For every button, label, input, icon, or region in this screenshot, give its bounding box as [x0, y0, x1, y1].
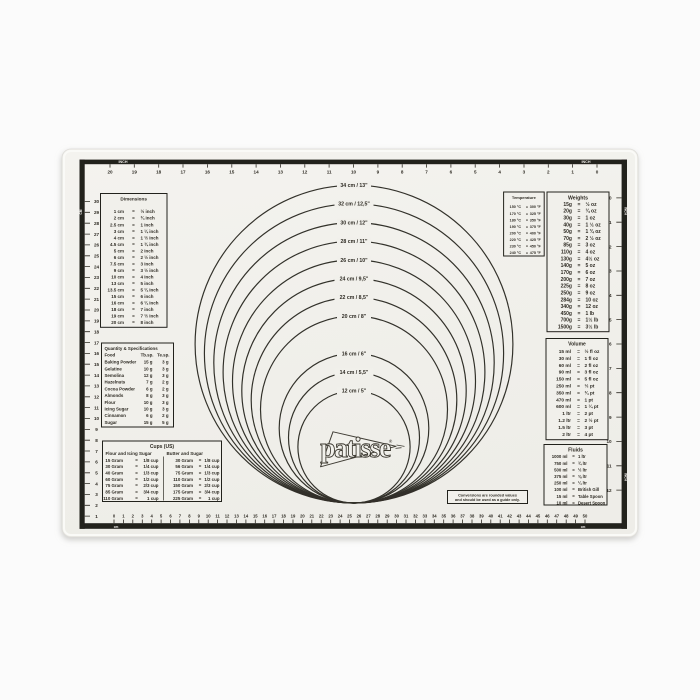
- svg-text:600 ml: 600 ml: [556, 404, 571, 410]
- svg-text:15: 15: [229, 169, 235, 174]
- svg-text:5: 5: [474, 169, 477, 174]
- svg-text:½ ltr: ½ ltr: [578, 467, 587, 472]
- svg-text:¼ ltr: ¼ ltr: [578, 481, 587, 486]
- svg-text:19: 19: [132, 169, 138, 174]
- svg-text:CM: CM: [79, 209, 83, 214]
- svg-text:6: 6: [609, 342, 612, 347]
- svg-text:1 cup: 1 cup: [147, 496, 159, 501]
- svg-text:17: 17: [94, 340, 100, 345]
- svg-text:22: 22: [319, 514, 324, 519]
- svg-text:375 ml: 375 ml: [554, 474, 567, 479]
- svg-text:10: 10: [351, 169, 357, 174]
- svg-text:=: =: [132, 209, 135, 214]
- svg-text:=: =: [135, 490, 138, 495]
- svg-text:2 g: 2 g: [162, 386, 169, 391]
- svg-text:=: =: [578, 243, 581, 249]
- svg-text:43: 43: [517, 514, 522, 519]
- svg-text:2: 2: [95, 503, 98, 508]
- svg-text:18: 18: [94, 329, 100, 334]
- svg-text:=: =: [577, 357, 580, 362]
- svg-text:Flour and Icing Sugar: Flour and Icing Sugar: [106, 451, 153, 456]
- svg-text:26: 26: [94, 243, 100, 248]
- svg-text:1 ¼ pt: 1 ¼ pt: [585, 403, 599, 410]
- svg-text:200g: 200g: [561, 277, 572, 283]
- svg-text:=: =: [132, 242, 135, 247]
- svg-text:=: =: [132, 235, 135, 240]
- svg-text:5 inch: 5 inch: [141, 281, 154, 286]
- svg-text:=: =: [578, 263, 581, 269]
- svg-text:7 g: 7 g: [146, 380, 153, 385]
- svg-text:1 cup: 1 cup: [208, 496, 220, 501]
- svg-text:2/3 cup: 2/3 cup: [143, 483, 158, 488]
- svg-text:INCH: INCH: [581, 160, 590, 164]
- svg-text:6 cm: 6 cm: [114, 255, 124, 260]
- svg-text:24: 24: [94, 264, 100, 269]
- svg-text:130g: 130g: [561, 256, 572, 262]
- svg-text:½ pt: ½ pt: [585, 383, 595, 390]
- svg-text:Cups (US): Cups (US): [150, 444, 175, 450]
- svg-text:patisse: patisse: [320, 432, 390, 464]
- svg-text:17: 17: [272, 514, 277, 519]
- svg-text:150 Gram: 150 Gram: [173, 483, 193, 488]
- svg-text:18: 18: [281, 514, 286, 519]
- svg-text:16: 16: [205, 169, 211, 174]
- svg-text:9: 9: [95, 427, 98, 432]
- svg-text:=: =: [526, 251, 528, 255]
- svg-text:Butter and Sugar: Butter and Sugar: [167, 451, 204, 456]
- svg-text:=: =: [578, 277, 581, 283]
- svg-text:39: 39: [479, 514, 484, 519]
- svg-text:1/8 cup: 1/8 cup: [143, 458, 158, 463]
- svg-text:5 oz: 5 oz: [586, 263, 596, 269]
- svg-text:=: =: [578, 250, 581, 256]
- svg-text:25: 25: [347, 514, 352, 519]
- svg-text:=: =: [577, 405, 580, 410]
- svg-text:=: =: [577, 426, 580, 431]
- svg-text:700g: 700g: [561, 318, 572, 324]
- svg-text:1/4 cup: 1/4 cup: [143, 464, 158, 469]
- svg-text:INCH: INCH: [623, 473, 627, 481]
- svg-text:=: =: [132, 248, 135, 253]
- svg-text:Tb.sp.: Tb.sp.: [141, 353, 154, 358]
- svg-text:26: 26: [357, 514, 362, 519]
- svg-text:110 Gram: 110 Gram: [103, 496, 123, 501]
- svg-text:Baking Powder: Baking Powder: [105, 360, 137, 365]
- svg-text:10 ml: 10 ml: [557, 500, 568, 505]
- svg-text:110 Gram: 110 Gram: [173, 477, 193, 482]
- svg-text:100 ml: 100 ml: [554, 487, 567, 492]
- svg-text:½ fl oz: ½ fl oz: [585, 348, 601, 355]
- svg-text:36: 36: [451, 514, 456, 519]
- svg-text:25: 25: [94, 253, 100, 258]
- svg-text:=: =: [135, 458, 138, 463]
- svg-text:=: =: [578, 256, 581, 262]
- svg-text:28: 28: [94, 221, 100, 226]
- svg-text:1 pt: 1 pt: [585, 397, 594, 403]
- svg-text:30g: 30g: [563, 215, 572, 221]
- svg-text:4 pt: 4 pt: [585, 432, 594, 438]
- svg-text:=: =: [578, 290, 581, 296]
- svg-text:300 °F: 300 °F: [530, 205, 542, 209]
- svg-text:28 cm / 11": 28 cm / 11": [341, 239, 369, 245]
- svg-text:½ oz: ½ oz: [586, 201, 598, 208]
- svg-text:1/2 cup: 1/2 cup: [143, 477, 158, 482]
- svg-text:1/3 cup: 1/3 cup: [204, 471, 219, 476]
- svg-text:3 g: 3 g: [162, 366, 169, 371]
- svg-text:30 Gram: 30 Gram: [105, 464, 123, 469]
- svg-text:33: 33: [423, 514, 428, 519]
- svg-text:Fluids: Fluids: [568, 448, 583, 454]
- svg-text:150 °C: 150 °C: [510, 205, 522, 209]
- svg-text:0: 0: [596, 169, 599, 174]
- svg-text:44: 44: [526, 514, 531, 519]
- svg-text:=: =: [577, 391, 580, 396]
- svg-text:350 °F: 350 °F: [530, 218, 542, 222]
- svg-text:400 °F: 400 °F: [530, 231, 542, 235]
- svg-text:=: =: [135, 483, 138, 488]
- svg-text:34 cm / 13": 34 cm / 13": [340, 183, 368, 189]
- svg-text:15 g: 15 g: [144, 360, 153, 365]
- svg-text:=: =: [199, 477, 202, 482]
- svg-text:18: 18: [156, 169, 162, 174]
- svg-text:=: =: [132, 216, 135, 221]
- svg-text:2 ½ oz: 2 ½ oz: [586, 235, 602, 242]
- svg-text:19: 19: [291, 514, 296, 519]
- svg-text:13: 13: [234, 514, 239, 519]
- svg-text:1/8 cup: 1/8 cup: [204, 458, 219, 463]
- svg-text:180 °C: 180 °C: [510, 218, 522, 222]
- svg-text:=: =: [199, 490, 202, 495]
- svg-text:¾ ltr: ¾ ltr: [578, 461, 587, 466]
- svg-text:7 oz: 7 oz: [586, 277, 596, 283]
- svg-text:85 Gram: 85 Gram: [105, 490, 123, 495]
- svg-text:=: =: [577, 378, 580, 383]
- svg-text:Table Spoon: Table Spoon: [578, 494, 603, 499]
- svg-text:=: =: [577, 398, 580, 403]
- svg-text:5: 5: [95, 470, 98, 475]
- svg-text:21: 21: [309, 514, 314, 519]
- svg-text:5 cm: 5 cm: [114, 248, 124, 253]
- svg-text:21: 21: [94, 297, 100, 302]
- svg-text:17: 17: [180, 169, 186, 174]
- svg-text:24 cm / 9,5": 24 cm / 9,5": [340, 277, 369, 283]
- svg-text:=: =: [577, 419, 580, 424]
- svg-text:=: =: [578, 318, 581, 324]
- svg-text:=: =: [577, 412, 580, 417]
- svg-text:=: =: [526, 205, 528, 209]
- svg-text:2 g: 2 g: [162, 413, 169, 418]
- svg-text:10 g: 10 g: [144, 366, 153, 371]
- svg-text:90 ml: 90 ml: [559, 370, 571, 376]
- svg-text:11: 11: [327, 169, 332, 174]
- svg-text:3 pt: 3 pt: [585, 425, 594, 431]
- svg-text:11: 11: [607, 463, 612, 468]
- svg-text:=: =: [132, 222, 135, 227]
- svg-text:=: =: [132, 320, 135, 325]
- svg-text:=: =: [132, 301, 135, 306]
- svg-text:=: =: [132, 229, 135, 234]
- svg-text:450g: 450g: [561, 311, 572, 317]
- svg-text:Food: Food: [105, 353, 116, 358]
- svg-text:284g: 284g: [561, 297, 572, 303]
- svg-text:4 oz: 4 oz: [586, 250, 596, 256]
- svg-text:14: 14: [244, 514, 249, 519]
- svg-text:2 ½ inch: 2 ½ inch: [141, 254, 159, 260]
- svg-text:31: 31: [404, 514, 409, 519]
- svg-text:38: 38: [470, 514, 475, 519]
- svg-text:32: 32: [413, 514, 418, 519]
- svg-text:=: =: [578, 222, 581, 228]
- svg-text:1: 1: [95, 514, 98, 519]
- svg-text:British Gill: British Gill: [578, 487, 599, 492]
- svg-text:10 cm: 10 cm: [111, 275, 124, 280]
- svg-text:3/4 cup: 3/4 cup: [204, 490, 219, 495]
- svg-text:=: =: [132, 268, 135, 273]
- svg-text:1500g: 1500g: [558, 325, 572, 331]
- svg-text:¾ oz: ¾ oz: [586, 208, 598, 215]
- svg-text:1 inch: 1 inch: [141, 222, 154, 227]
- svg-text:16 cm: 16 cm: [111, 301, 124, 306]
- svg-text:8 oz: 8 oz: [586, 284, 596, 290]
- svg-text:30: 30: [94, 199, 100, 204]
- svg-text:325 °F: 325 °F: [530, 212, 542, 216]
- svg-text:3 g: 3 g: [162, 407, 169, 412]
- svg-text:Sugar: Sugar: [105, 420, 118, 425]
- svg-text:=: =: [135, 496, 138, 501]
- svg-text:=: =: [578, 209, 581, 215]
- svg-text:23: 23: [328, 514, 333, 519]
- svg-text:INCH: INCH: [118, 160, 127, 164]
- svg-text:1 ½ oz: 1 ½ oz: [586, 221, 602, 228]
- svg-text:250 ml: 250 ml: [556, 384, 571, 390]
- svg-text:=: =: [578, 297, 581, 303]
- svg-text:=: =: [132, 261, 135, 266]
- svg-text:110g: 110g: [561, 250, 572, 256]
- svg-text:6 g: 6 g: [146, 386, 153, 391]
- svg-text:=: =: [578, 202, 581, 208]
- svg-text:42: 42: [507, 514, 512, 519]
- svg-text:20 cm: 20 cm: [111, 320, 124, 325]
- svg-text:⅜ ltr: ⅜ ltr: [578, 474, 587, 479]
- svg-text:49: 49: [573, 514, 578, 519]
- svg-text:1 ¼ inch: 1 ¼ inch: [141, 228, 159, 234]
- svg-text:75 Gram: 75 Gram: [175, 471, 193, 476]
- svg-text:=: =: [135, 477, 138, 482]
- svg-text:3½ lb: 3½ lb: [586, 324, 599, 331]
- svg-text:10 oz: 10 oz: [586, 297, 599, 303]
- svg-text:20 cm / 8": 20 cm / 8": [342, 314, 367, 320]
- svg-text:2 cm: 2 cm: [114, 216, 124, 221]
- svg-text:56 Gram: 56 Gram: [175, 464, 193, 469]
- svg-text:=: =: [526, 238, 528, 242]
- svg-text:=: =: [199, 471, 202, 476]
- svg-text:7 inch: 7 inch: [141, 307, 154, 312]
- svg-text:19: 19: [94, 319, 100, 324]
- svg-text:20: 20: [300, 514, 305, 519]
- svg-text:225 Gram: 225 Gram: [173, 496, 193, 501]
- svg-text:=: =: [577, 350, 580, 355]
- svg-text:15g: 15g: [563, 202, 572, 208]
- svg-text:23: 23: [94, 275, 100, 280]
- svg-text:8: 8: [95, 438, 98, 443]
- svg-text:=: =: [199, 464, 202, 469]
- svg-text:¾ pt: ¾ pt: [585, 389, 595, 396]
- svg-text:=: =: [132, 281, 135, 286]
- svg-text:and should be used as a guide: and should be used as a guide only.: [455, 498, 520, 502]
- svg-text:40 Gram: 40 Gram: [105, 471, 123, 476]
- svg-text:14: 14: [94, 373, 100, 378]
- svg-text:½ inch: ½ inch: [141, 208, 156, 214]
- svg-text:3 g: 3 g: [162, 400, 169, 405]
- svg-text:5 ¼ inch: 5 ¼ inch: [141, 287, 159, 293]
- svg-text:27: 27: [366, 514, 371, 519]
- svg-text:Semolina: Semolina: [105, 373, 125, 378]
- svg-text:Cinnamon: Cinnamon: [105, 413, 127, 418]
- svg-text:=: =: [526, 218, 528, 222]
- svg-text:¾ inch: ¾ inch: [141, 215, 156, 221]
- svg-text:30 Gram: 30 Gram: [175, 458, 193, 463]
- svg-text:8: 8: [401, 169, 404, 174]
- svg-text:15 cm: 15 cm: [111, 294, 124, 299]
- svg-text:175 Gram: 175 Gram: [173, 490, 193, 495]
- svg-text:2 pt: 2 pt: [585, 411, 594, 417]
- svg-text:15 Gram: 15 Gram: [105, 458, 123, 463]
- svg-text:2 ½ pt: 2 ½ pt: [585, 417, 599, 424]
- svg-text:1/4 cup: 1/4 cup: [204, 464, 219, 469]
- svg-text:11: 11: [215, 514, 220, 519]
- svg-text:2 g: 2 g: [162, 380, 169, 385]
- svg-text:=: =: [132, 288, 135, 293]
- svg-text:Desert Spoon: Desert Spoon: [578, 500, 606, 505]
- svg-text:16: 16: [94, 351, 100, 356]
- svg-text:85g: 85g: [563, 243, 572, 249]
- svg-text:1 fl oz: 1 fl oz: [585, 356, 599, 362]
- svg-text:6 ¼ inch: 6 ¼ inch: [141, 300, 159, 306]
- svg-text:=: =: [135, 464, 138, 469]
- svg-text:2: 2: [547, 169, 550, 174]
- svg-text:6: 6: [95, 460, 98, 465]
- svg-text:12 oz: 12 oz: [586, 304, 599, 310]
- svg-text:=: =: [578, 284, 581, 290]
- svg-text:3/4 cup: 3/4 cup: [143, 490, 158, 495]
- svg-text:=: =: [578, 229, 581, 235]
- svg-text:=: =: [577, 364, 580, 369]
- svg-text:70g: 70g: [563, 236, 572, 242]
- svg-text:Conversions are rounded values: Conversions are rounded values: [458, 493, 517, 497]
- svg-text:220 °C: 220 °C: [510, 238, 522, 242]
- svg-text:230 °C: 230 °C: [510, 245, 522, 249]
- svg-text:20g: 20g: [563, 209, 572, 215]
- svg-text:32 cm / 12,5": 32 cm / 12,5": [338, 202, 370, 208]
- svg-text:3 oz: 3 oz: [586, 243, 596, 249]
- svg-text:=: =: [132, 314, 135, 319]
- svg-text:4.5 cm: 4.5 cm: [110, 242, 124, 247]
- svg-text:16 cm / 6": 16 cm / 6": [342, 351, 367, 357]
- svg-text:=: =: [132, 307, 135, 312]
- svg-text:5 g: 5 g: [162, 420, 169, 425]
- svg-text:1/2 cup: 1/2 cup: [204, 477, 219, 482]
- svg-text:Gelatine: Gelatine: [105, 366, 123, 371]
- svg-text:Almonds: Almonds: [105, 393, 124, 398]
- svg-text:7: 7: [95, 449, 98, 454]
- svg-text:150 ml: 150 ml: [556, 377, 571, 383]
- svg-text:Dimensions: Dimensions: [120, 197, 147, 202]
- svg-text:9: 9: [609, 415, 612, 420]
- svg-text:19 cm: 19 cm: [111, 314, 124, 319]
- svg-text:=: =: [578, 236, 581, 242]
- svg-text:13: 13: [94, 384, 100, 389]
- svg-text:7 ½ inch: 7 ½ inch: [141, 313, 159, 319]
- svg-text:4 inch: 4 inch: [141, 275, 154, 280]
- svg-text:37: 37: [460, 514, 465, 519]
- svg-text:470 ml: 470 ml: [556, 397, 571, 403]
- svg-text:4: 4: [95, 481, 98, 486]
- svg-text:1 ¾ oz: 1 ¾ oz: [586, 228, 602, 235]
- svg-text:2 ltr: 2 ltr: [562, 432, 571, 438]
- svg-text:Hazelnuts: Hazelnuts: [105, 380, 126, 385]
- svg-text:=: =: [526, 212, 528, 216]
- svg-text:8 g: 8 g: [146, 393, 153, 398]
- svg-text:=: =: [577, 371, 580, 376]
- svg-text:475 °F: 475 °F: [530, 251, 542, 255]
- svg-text:=: =: [526, 245, 528, 249]
- svg-text:3: 3: [95, 492, 98, 497]
- svg-text:=: =: [132, 294, 135, 299]
- svg-text:1 ¾ inch: 1 ¾ inch: [141, 241, 159, 247]
- svg-text:cm: cm: [114, 525, 119, 529]
- svg-text:41: 41: [498, 514, 503, 519]
- svg-text:29: 29: [94, 210, 100, 215]
- svg-text:=: =: [578, 304, 581, 310]
- svg-text:3 g: 3 g: [162, 360, 169, 365]
- svg-text:9 oz: 9 oz: [586, 290, 596, 296]
- svg-text:4: 4: [498, 169, 501, 174]
- svg-text:11: 11: [94, 405, 99, 410]
- svg-text:7.5 cm: 7.5 cm: [110, 261, 124, 266]
- svg-text:40g: 40g: [563, 222, 572, 228]
- svg-text:Te.sp.: Te.sp.: [157, 353, 169, 358]
- svg-text:Quantity & Specifications: Quantity & Specifications: [105, 346, 159, 351]
- svg-text:250 ml: 250 ml: [554, 481, 567, 486]
- svg-text:1000 ml: 1000 ml: [552, 454, 568, 459]
- svg-text:15: 15: [253, 514, 258, 519]
- svg-text:6 oz: 6 oz: [586, 270, 596, 276]
- svg-text:1 ltr: 1 ltr: [562, 411, 571, 417]
- svg-text:1.5 ltr: 1.5 ltr: [558, 425, 571, 431]
- svg-text:190 °C: 190 °C: [510, 225, 522, 229]
- svg-text:4½ oz: 4½ oz: [586, 255, 600, 262]
- svg-text:1: 1: [571, 169, 574, 174]
- svg-text:450 °F: 450 °F: [530, 245, 542, 249]
- svg-text:170 °C: 170 °C: [510, 212, 522, 216]
- svg-text:2.5 cm: 2.5 cm: [110, 222, 124, 227]
- svg-text:28: 28: [375, 514, 380, 519]
- svg-text:60 ml: 60 ml: [559, 363, 571, 369]
- svg-text:10 g: 10 g: [144, 407, 153, 412]
- svg-text:22: 22: [94, 286, 100, 291]
- svg-text:2 fl oz: 2 fl oz: [585, 363, 599, 369]
- svg-text:29: 29: [385, 514, 390, 519]
- svg-text:=: =: [526, 231, 528, 235]
- svg-text:12: 12: [225, 514, 230, 519]
- svg-text:1 ½ inch: 1 ½ inch: [141, 234, 159, 240]
- svg-text:Weights: Weights: [568, 196, 588, 202]
- svg-text:4 cm: 4 cm: [114, 235, 124, 240]
- svg-text:1½ lb: 1½ lb: [586, 317, 599, 324]
- svg-text:=: =: [199, 483, 202, 488]
- svg-text:cm: cm: [581, 525, 586, 529]
- svg-text:22 cm / 8,5": 22 cm / 8,5": [340, 295, 369, 301]
